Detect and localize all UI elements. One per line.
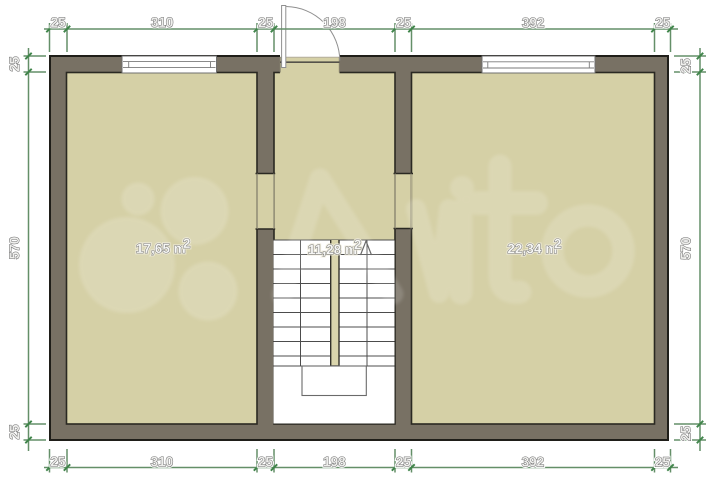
svg-text:25: 25 — [679, 426, 694, 442]
svg-text:22,34 m: 22,34 m — [507, 241, 557, 256]
svg-text:25: 25 — [655, 15, 671, 30]
svg-text:25: 25 — [679, 58, 694, 74]
svg-text:25: 25 — [50, 454, 66, 469]
svg-text:25: 25 — [655, 454, 671, 469]
svg-text:25: 25 — [396, 15, 412, 30]
svg-text:17,65 m: 17,65 m — [136, 241, 186, 256]
svg-text:25: 25 — [7, 424, 22, 440]
svg-text:25: 25 — [7, 56, 22, 72]
svg-text:2: 2 — [183, 236, 191, 251]
svg-text:198: 198 — [323, 454, 346, 469]
svg-text:198: 198 — [323, 15, 346, 30]
svg-text:2: 2 — [554, 236, 562, 251]
svg-text:310: 310 — [151, 454, 174, 469]
svg-text:2: 2 — [354, 237, 362, 252]
svg-text:392: 392 — [522, 454, 545, 469]
svg-text:25: 25 — [396, 454, 412, 469]
svg-text:310: 310 — [151, 15, 174, 30]
svg-text:25: 25 — [258, 15, 274, 30]
svg-text:392: 392 — [522, 15, 545, 30]
svg-text:25: 25 — [258, 454, 274, 469]
svg-text:570: 570 — [7, 237, 22, 260]
svg-text:11,28 m: 11,28 m — [308, 242, 357, 257]
svg-text:570: 570 — [679, 237, 694, 260]
svg-text:25: 25 — [51, 15, 67, 30]
